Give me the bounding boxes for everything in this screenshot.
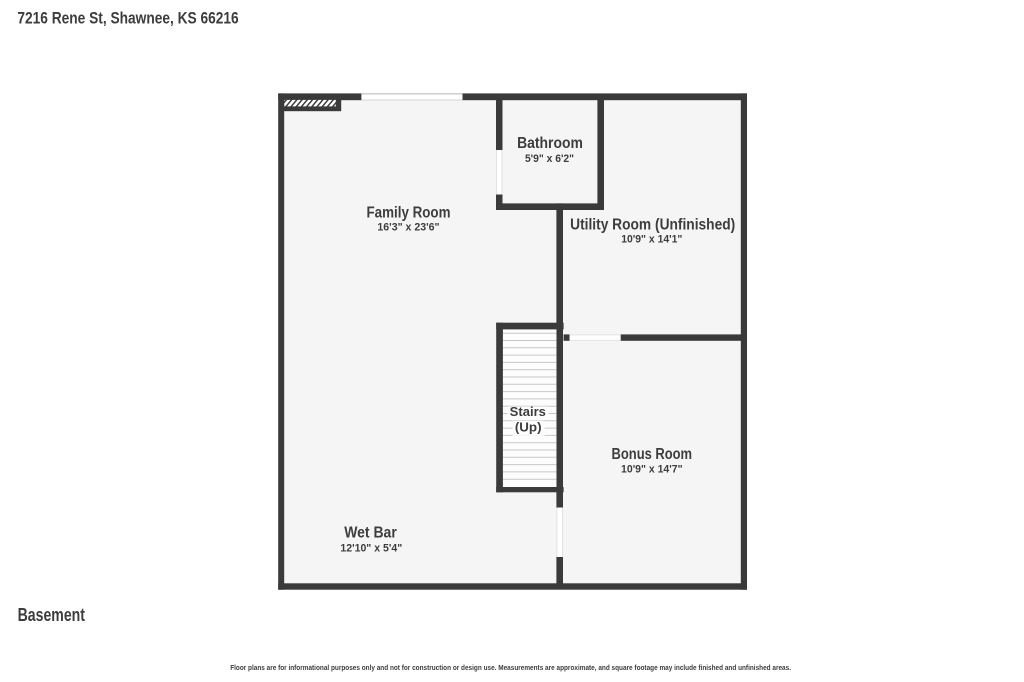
svg-text:Family Room: Family Room bbox=[367, 204, 451, 221]
svg-text:(Up): (Up) bbox=[515, 421, 542, 435]
svg-text:Utility Room (Unfinished): Utility Room (Unfinished) bbox=[570, 217, 735, 234]
svg-text:12'10" x 5'4": 12'10" x 5'4" bbox=[340, 543, 402, 555]
svg-text:10'9" x 14'7": 10'9" x 14'7" bbox=[621, 464, 683, 476]
svg-text:Bonus Room: Bonus Room bbox=[612, 446, 693, 463]
svg-text:5'9" x 6'2": 5'9" x 6'2" bbox=[525, 153, 574, 165]
svg-text:10'9" x 14'1": 10'9" x 14'1" bbox=[621, 234, 682, 246]
svg-text:Basement: Basement bbox=[18, 605, 85, 625]
svg-text:7216 Rene St, Shawnee, KS 6621: 7216 Rene St, Shawnee, KS 66216 bbox=[17, 9, 238, 28]
svg-text:Wet Bar: Wet Bar bbox=[344, 524, 397, 541]
svg-text:Bathroom: Bathroom bbox=[517, 135, 583, 152]
svg-text:16'3" x 23'6": 16'3" x 23'6" bbox=[377, 221, 439, 233]
svg-text:Stairs: Stairs bbox=[510, 405, 546, 419]
svg-text:Floor plans are for informatio: Floor plans are for informational purpos… bbox=[230, 665, 791, 672]
